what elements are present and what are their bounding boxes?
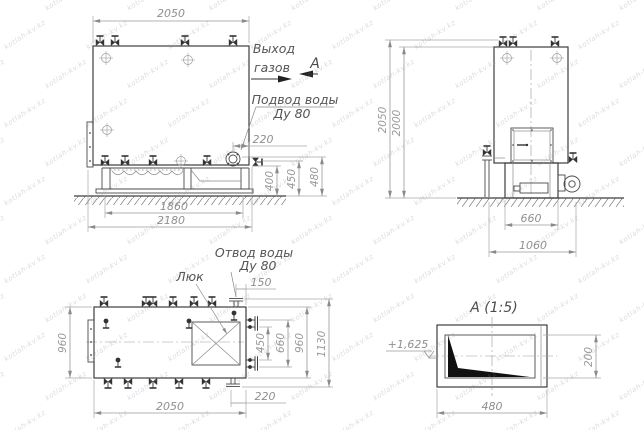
valve-icon bbox=[149, 378, 157, 388]
dim-plan-stub-span: 450 bbox=[255, 333, 267, 353]
stub-flange-icon bbox=[246, 356, 258, 364]
dim-plan-outlet-offset: 150 bbox=[251, 276, 272, 289]
valve-icon bbox=[202, 378, 210, 388]
dim-plan-depth-left: 960 bbox=[57, 333, 69, 353]
valve-icon bbox=[96, 36, 104, 46]
front-view: 2050 1860 2180 220 400 450 480 Выход bbox=[74, 7, 339, 232]
label-water-outlet-2: Ду 80 bbox=[238, 258, 276, 273]
boiler-door bbox=[511, 128, 553, 163]
stub-flange-icon bbox=[246, 323, 258, 331]
valve-icon bbox=[186, 319, 192, 328]
dim-plan-flange-offset: 220 bbox=[255, 390, 276, 403]
dim-side-height-body: 2000 bbox=[391, 109, 403, 136]
label-hatch: Люк bbox=[175, 269, 204, 284]
valve-icon bbox=[169, 297, 177, 307]
label-water-inlet-2: Ду 80 bbox=[272, 106, 310, 121]
elevation-value: +1,625 bbox=[388, 338, 429, 351]
label-view-marker: А bbox=[309, 56, 320, 72]
valve-icon bbox=[149, 297, 157, 307]
gas-flow-arrow-icon bbox=[278, 76, 292, 83]
dim-plan-depth-right: 960 bbox=[294, 333, 306, 353]
view-direction-arrow-icon bbox=[299, 71, 313, 78]
dim-detail-height: 200 bbox=[583, 347, 595, 367]
dim-front-width: 2050 bbox=[157, 7, 185, 20]
valve-icon bbox=[124, 378, 132, 388]
dim-front-h400: 400 bbox=[264, 171, 276, 191]
hatch-box bbox=[192, 322, 240, 365]
position-marker-icon bbox=[100, 123, 114, 137]
detail-view: А (1:5) 480 200 +1,625 bbox=[386, 300, 601, 418]
base-frame bbox=[96, 168, 253, 193]
flange-icon bbox=[226, 152, 240, 166]
dim-plan-length: 2050 bbox=[156, 400, 184, 413]
valve-icon bbox=[509, 37, 517, 47]
valve-icon bbox=[103, 319, 109, 328]
valve-icon bbox=[104, 378, 112, 388]
dim-front-overall-width: 2180 bbox=[157, 214, 185, 227]
plan-view: 960 150 450 660 960 1130 2050 220 bbox=[57, 245, 333, 418]
side-dimensions: 2050 2000 660 1060 bbox=[377, 40, 576, 257]
dim-side-overall-width: 1060 bbox=[519, 239, 547, 252]
position-marker-icon bbox=[181, 53, 195, 67]
technical-drawing: 2050 1860 2180 220 400 450 480 Выход bbox=[0, 0, 644, 430]
valve-icon bbox=[100, 297, 108, 307]
burner-fan bbox=[558, 175, 580, 192]
position-marker-icon bbox=[99, 51, 113, 65]
dim-front-h450: 450 bbox=[286, 169, 298, 189]
valve-icon bbox=[190, 297, 198, 307]
dim-front-h480: 480 bbox=[309, 167, 321, 187]
dim-side-height-overall: 2050 bbox=[377, 106, 389, 133]
valve-icon bbox=[499, 37, 507, 47]
dim-plan-overall-depth: 1130 bbox=[316, 330, 328, 357]
dim-front-base-span: 1860 bbox=[160, 200, 188, 213]
outlet-flange bbox=[229, 299, 243, 308]
stub-flange-icon bbox=[246, 316, 258, 324]
label-gas-exit-1: Выход bbox=[253, 41, 295, 56]
valve-icon bbox=[231, 311, 237, 320]
valve-icon bbox=[483, 146, 491, 156]
label-water-inlet-1: Подвод воды bbox=[252, 92, 339, 107]
dim-plan-stub-overall: 660 bbox=[275, 333, 287, 353]
position-marker-icon bbox=[500, 51, 514, 65]
side-view: 2050 2000 660 1060 bbox=[377, 37, 624, 257]
elevation-mark: +1,625 bbox=[386, 338, 437, 358]
detail-title: А (1:5) bbox=[469, 300, 517, 316]
valve-icon bbox=[252, 158, 262, 166]
bottom-flange bbox=[226, 378, 240, 387]
stub-flange-icon bbox=[246, 363, 258, 371]
position-marker-icon bbox=[550, 51, 564, 65]
position-marker-icon bbox=[174, 154, 188, 168]
valve-icon bbox=[229, 36, 237, 46]
valve-icon bbox=[115, 358, 121, 367]
drawing-canvas: 2050 1860 2180 220 400 450 480 Выход bbox=[0, 0, 644, 430]
dim-front-flange-offset: 220 bbox=[253, 133, 274, 146]
valve-icon bbox=[181, 36, 189, 46]
valve-icon bbox=[569, 153, 577, 163]
dim-side-base-width: 660 bbox=[521, 212, 542, 225]
dim-detail-width: 480 bbox=[482, 400, 503, 413]
label-gas-exit-2: газов bbox=[254, 60, 290, 75]
ground-hatch bbox=[457, 199, 624, 208]
valve-icon bbox=[175, 378, 183, 388]
valve-icon bbox=[111, 36, 119, 46]
valve-icon bbox=[551, 37, 559, 47]
side-base bbox=[505, 163, 558, 198]
